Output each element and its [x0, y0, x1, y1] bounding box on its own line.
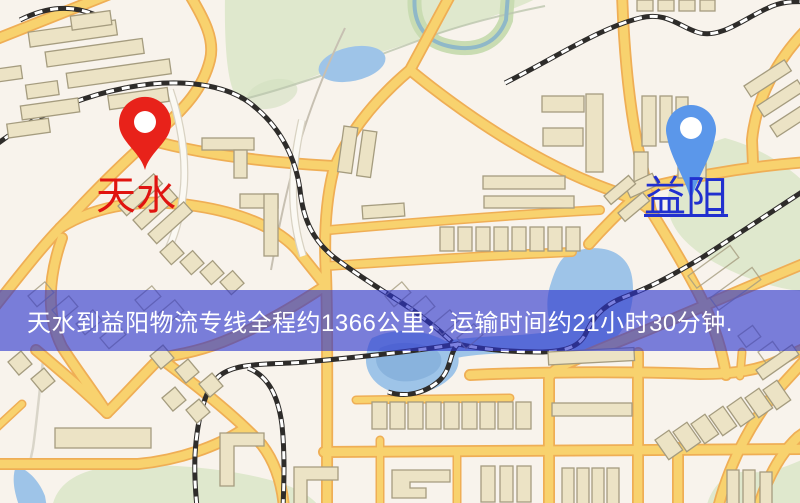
- logistics-route-map: 天水 益阳 天水到益阳物流专线全程约1366公里，运输时间约21小时30分钟.: [0, 0, 800, 503]
- destination-city-label: 益阳: [644, 177, 728, 219]
- red-map-pin-icon[interactable]: [115, 94, 175, 172]
- route-info-banner: 天水到益阳物流专线全程约1366公里，运输时间约21小时30分钟.: [0, 290, 800, 351]
- route-info-text: 天水到益阳物流专线全程约1366公里，运输时间约21小时30分钟.: [0, 303, 733, 338]
- origin-city-label: 天水: [96, 176, 176, 216]
- map-canvas: [0, 0, 800, 503]
